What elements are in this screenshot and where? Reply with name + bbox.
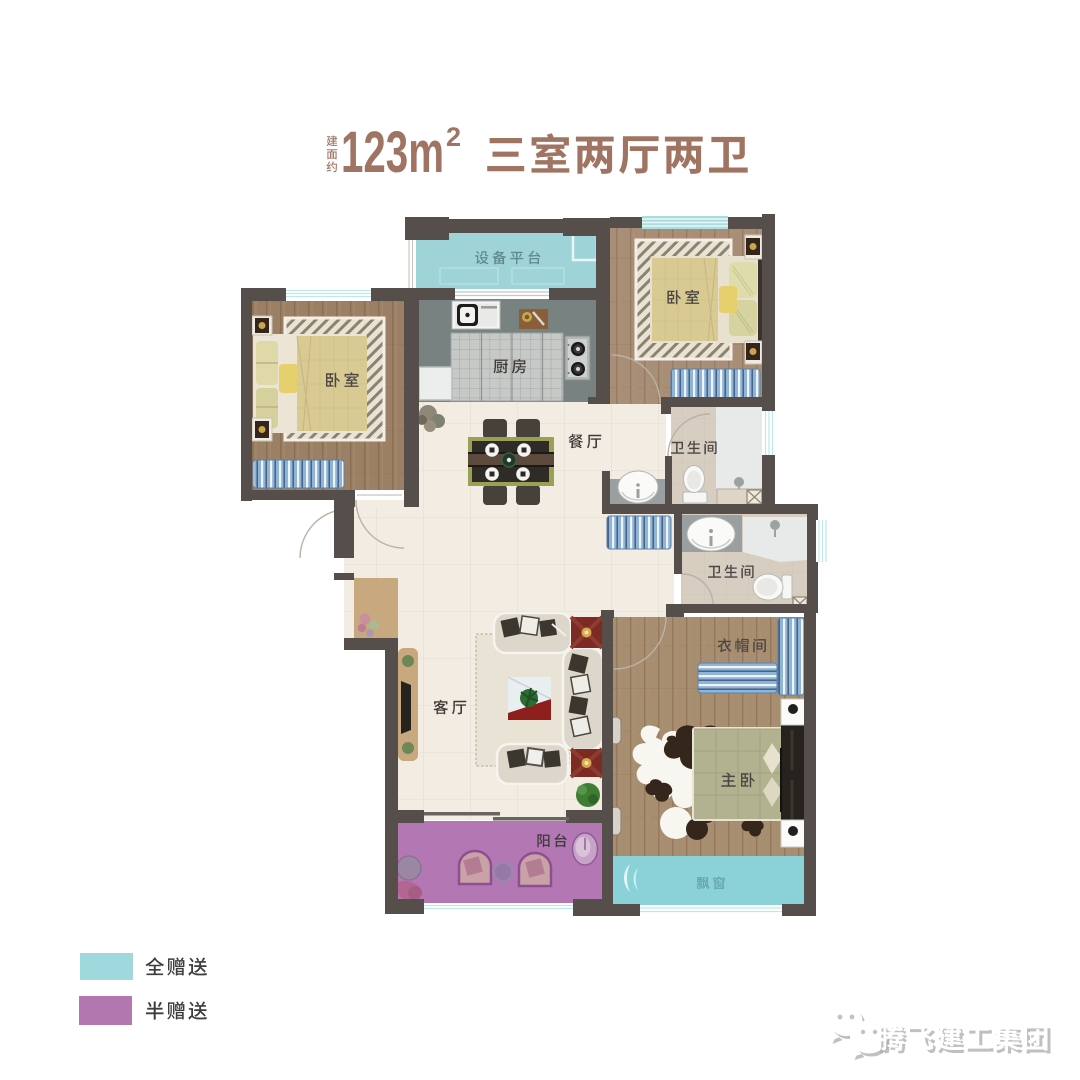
svg-text:2: 2 — [446, 122, 461, 152]
svg-text:123m: 123m — [341, 120, 444, 185]
